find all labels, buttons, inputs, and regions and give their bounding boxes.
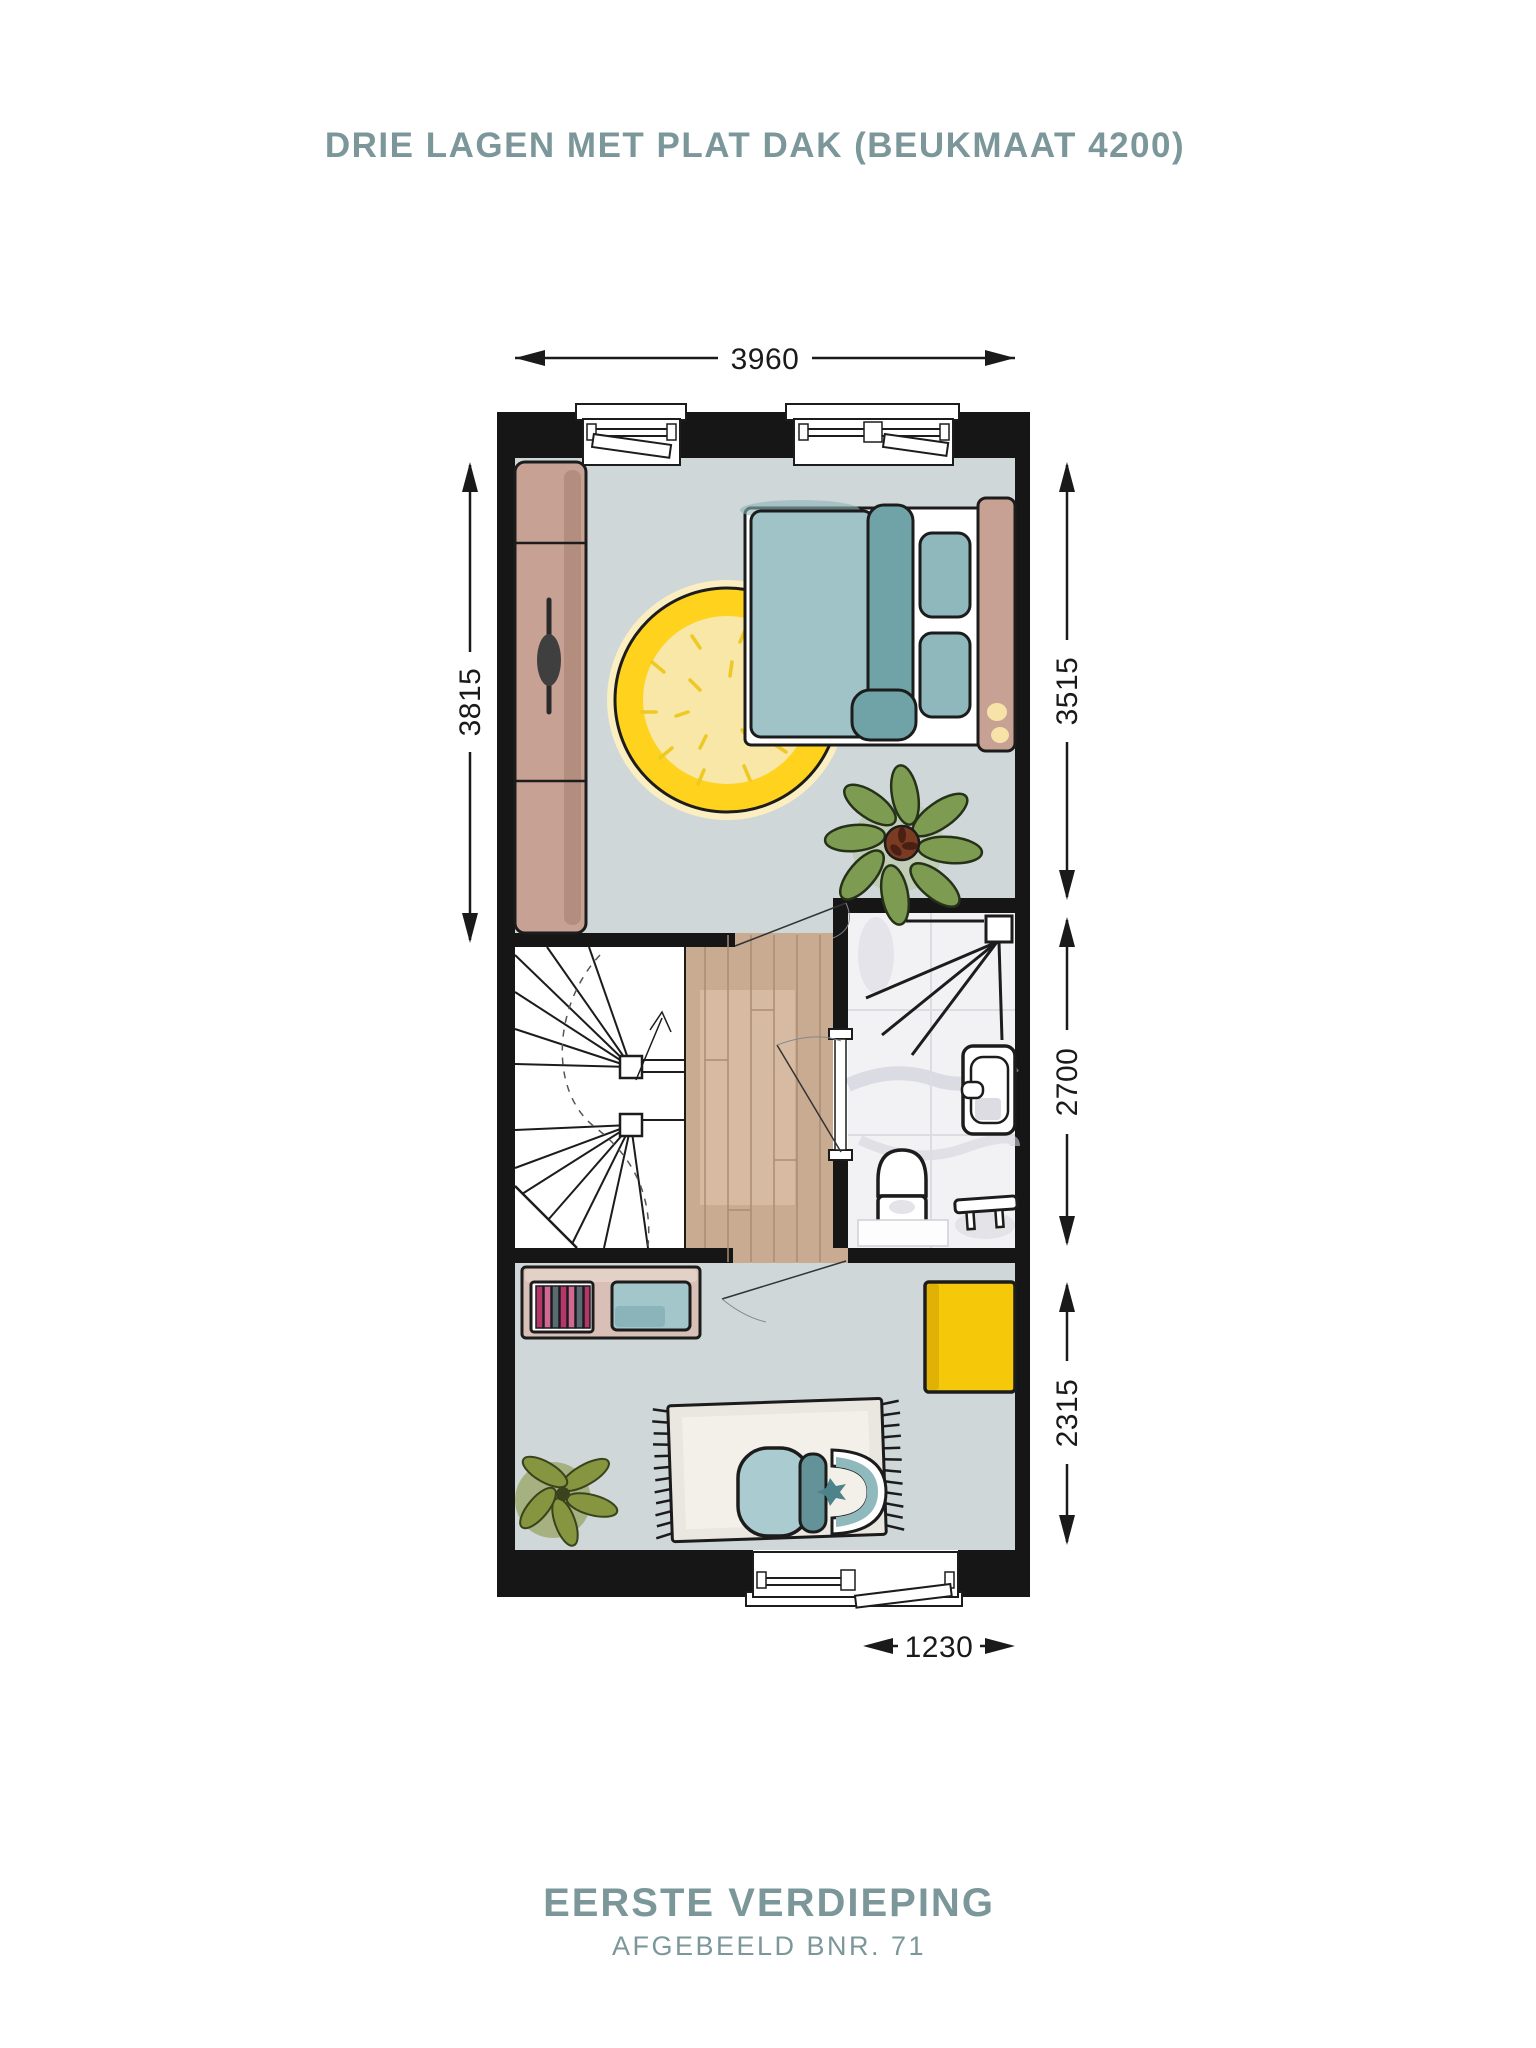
books	[531, 1282, 593, 1332]
svg-text:3960: 3960	[731, 343, 800, 376]
dimension-right-bottom: 2315	[1051, 1282, 1084, 1545]
window-bottom	[746, 1552, 962, 1608]
faucet	[962, 1082, 983, 1098]
svg-text:3815: 3815	[454, 668, 487, 737]
svg-text:2700: 2700	[1051, 1048, 1084, 1117]
wardrobe	[515, 462, 586, 933]
laptop	[612, 1282, 690, 1330]
page-title: DRIE LAGEN MET PLAT DAK (BEUKMAAT 4200)	[325, 126, 1185, 165]
plot-label: AFGEBEELD BNR. 71	[612, 1931, 926, 1961]
floor-plan-drawing: DRIE LAGEN MET PLAT DAK (BEUKMAAT 4200)	[0, 0, 1536, 2048]
pillow	[920, 633, 970, 717]
svg-text:1230: 1230	[905, 1631, 974, 1664]
floor-name: EERSTE VERDIEPING	[543, 1881, 995, 1925]
dimension-right-middle: 2700	[1051, 917, 1084, 1246]
double-bed	[740, 498, 1015, 751]
desk	[522, 1267, 700, 1338]
dimension-right-bedroom: 3515	[1051, 462, 1084, 900]
dimension-top-width: 3960	[515, 343, 1015, 376]
svg-text:3515: 3515	[1051, 657, 1084, 726]
yellow-cabinet	[925, 1282, 1015, 1392]
svg-text:2315: 2315	[1051, 1379, 1084, 1448]
dimension-left-depth: 3815	[454, 462, 487, 943]
stairwell-floor	[515, 947, 685, 1248]
pillow	[920, 533, 970, 617]
floor-plan-page: DRIE LAGEN MET PLAT DAK (BEUKMAAT 4200)	[0, 0, 1536, 2048]
window-top-left	[576, 404, 686, 465]
dimension-bottom-window: 1230	[863, 1631, 1015, 1664]
window-top-right	[786, 404, 959, 465]
washbasin	[962, 1046, 1015, 1134]
